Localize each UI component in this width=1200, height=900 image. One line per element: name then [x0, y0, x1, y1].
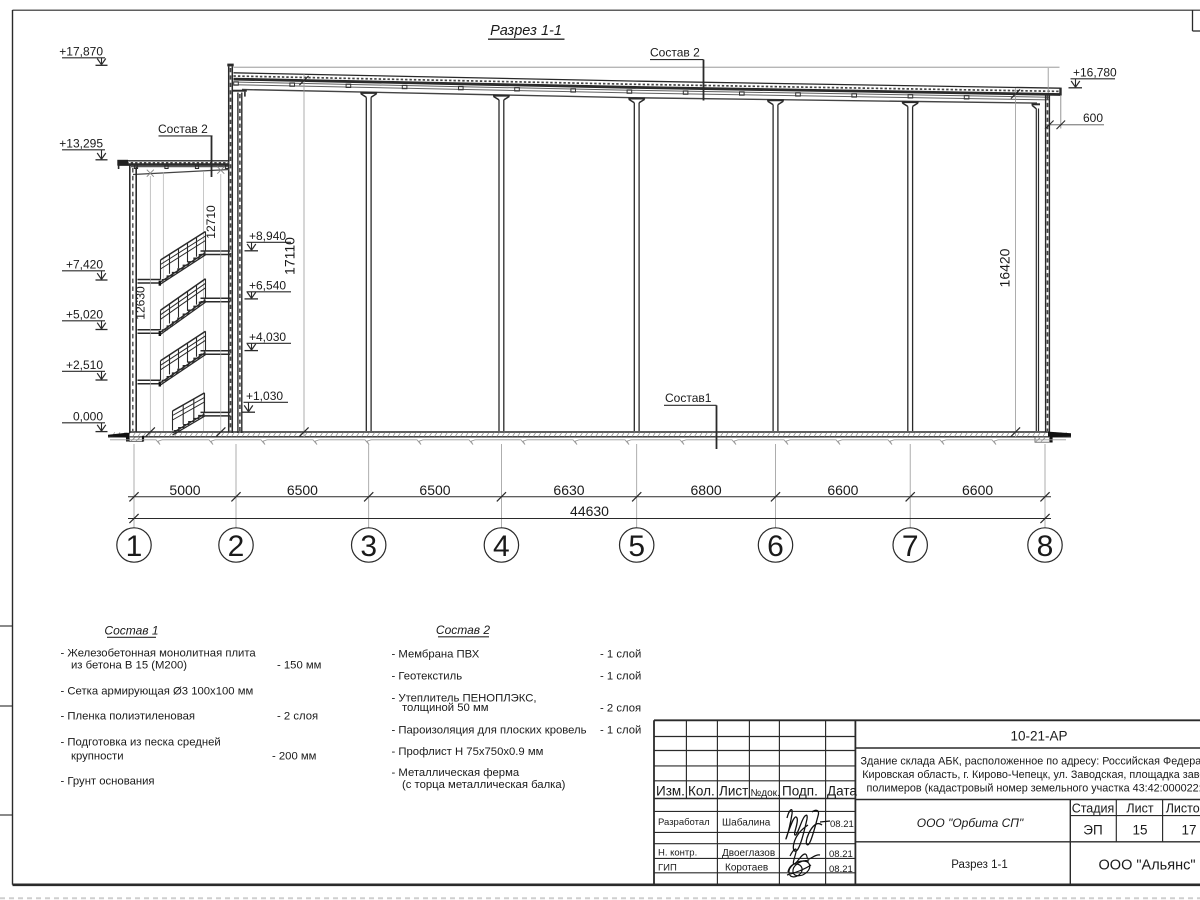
svg-text:44630: 44630	[570, 503, 609, 519]
svg-text:- Железобетонная монолитная п: - Железобетонная монолитная плита	[61, 648, 257, 660]
svg-text:Кол.: Кол.	[688, 784, 715, 799]
svg-text:17: 17	[1181, 823, 1196, 838]
svg-text:- Пароизоляция для плоских кро: - Пароизоляция для плоских кровель	[392, 725, 587, 737]
svg-text:Состав 1: Состав 1	[104, 624, 158, 638]
svg-text:6800: 6800	[691, 482, 722, 498]
svg-text:Шабалина: Шабалина	[722, 817, 771, 829]
svg-text:Подп.: Подп.	[782, 784, 818, 799]
svg-text:+13,295: +13,295	[59, 137, 103, 151]
svg-text:15: 15	[1132, 823, 1147, 838]
svg-text:6500: 6500	[287, 482, 318, 498]
svg-text:+6,540: +6,540	[249, 279, 286, 293]
svg-text:Лист: Лист	[719, 784, 748, 799]
svg-text:- Профлист Н 75х750х0.9 мм: - Профлист Н 75х750х0.9 мм	[392, 746, 544, 758]
svg-text:2: 2	[228, 530, 245, 563]
svg-text:Изм.: Изм.	[656, 784, 685, 799]
svg-text:5: 5	[628, 530, 645, 563]
svg-text:Коротаев: Коротаев	[725, 863, 768, 874]
svg-text:12630: 12630	[133, 286, 147, 320]
svg-text:600: 600	[1083, 111, 1103, 125]
svg-text:3: 3	[360, 530, 377, 563]
svg-text:Разрез 1-1: Разрез 1-1	[490, 23, 562, 39]
svg-text:Состав 2: Состав 2	[650, 46, 700, 60]
svg-text:08.21: 08.21	[830, 819, 854, 830]
svg-text:ООО "Альянс": ООО "Альянс"	[1099, 858, 1196, 874]
svg-text:Разрез 1-1: Разрез 1-1	[951, 859, 1007, 871]
svg-text:- Геотекстиль: - Геотекстиль	[392, 671, 463, 683]
svg-text:- 200 мм: - 200 мм	[272, 751, 316, 763]
svg-text:(с торца металлическая балка): (с торца металлическая балка)	[402, 779, 566, 791]
svg-text:- Металлическая ферма: - Металлическая ферма	[392, 767, 520, 779]
svg-text:- Сетка армирующая Ø3 100х100: - Сетка армирующая Ø3 100х100 мм	[61, 686, 254, 698]
svg-text:Стадия: Стадия	[1072, 802, 1115, 816]
svg-text:08.21: 08.21	[829, 864, 853, 875]
svg-text:6600: 6600	[827, 482, 858, 498]
svg-text:Кировская область, г. Кирово-Ч: Кировская область, г. Кирово-Чепецк, ул.…	[862, 769, 1200, 781]
svg-text:8: 8	[1037, 530, 1054, 563]
svg-text:17110: 17110	[282, 237, 298, 275]
svg-text:- 1 слой: - 1 слой	[600, 725, 641, 737]
svg-text:- Мембрана ПВХ: - Мембрана ПВХ	[392, 649, 480, 661]
svg-text:Здание склада АБК, расположенн: Здание склада АБК, расположенное по адре…	[861, 756, 1200, 768]
svg-text:0,000: 0,000	[73, 410, 103, 424]
svg-text:ООО "Орбита СП": ООО "Орбита СП"	[917, 816, 1024, 830]
svg-text:- 1 слой: - 1 слой	[600, 649, 641, 661]
svg-text:6500: 6500	[419, 482, 450, 498]
svg-text:- 2 слоя: - 2 слоя	[277, 711, 318, 723]
svg-text:полимеров (кадастровый номер з: полимеров (кадастровый номер земельного …	[867, 783, 1200, 795]
svg-text:+2,510: +2,510	[66, 358, 103, 372]
svg-text:Н. контр.: Н. контр.	[658, 847, 697, 858]
svg-text:- Пленка полиэтиленовая: - Пленка полиэтиленовая	[61, 711, 195, 723]
svg-text:12710: 12710	[204, 205, 218, 239]
svg-text:Состав 2: Состав 2	[436, 623, 490, 637]
svg-text:Листов: Листов	[1166, 802, 1200, 816]
svg-text:Разработал: Разработал	[658, 817, 710, 828]
svg-text:6630: 6630	[553, 482, 584, 498]
svg-text:ЭП: ЭП	[1083, 823, 1102, 838]
svg-text:+16,780: +16,780	[1073, 66, 1117, 80]
svg-text:+7,420: +7,420	[66, 258, 103, 272]
svg-text:Лист: Лист	[1126, 802, 1153, 816]
svg-text:6: 6	[767, 530, 784, 563]
svg-text:Состав1: Состав1	[665, 391, 712, 405]
svg-text:из бетона В 15 (М200): из бетона В 15 (М200)	[71, 660, 187, 672]
svg-text:ГИП: ГИП	[658, 862, 677, 873]
svg-text:+5,020: +5,020	[66, 308, 103, 322]
svg-text:Двоеглазов: Двоеглазов	[722, 848, 775, 859]
svg-text:4: 4	[493, 530, 510, 563]
svg-text:+4,030: +4,030	[249, 330, 286, 344]
svg-text:Дата: Дата	[827, 784, 857, 799]
svg-text:5000: 5000	[169, 482, 200, 498]
svg-text:16420: 16420	[997, 248, 1013, 287]
svg-text:08.21: 08.21	[829, 849, 853, 860]
svg-text:№док.: №док.	[751, 788, 780, 799]
svg-text:толщиной 50 мм: толщиной 50 мм	[402, 702, 489, 714]
svg-text:крупности: крупности	[71, 751, 124, 763]
svg-text:10-21-АР: 10-21-АР	[1010, 729, 1067, 744]
svg-text:+1,030: +1,030	[246, 389, 283, 403]
svg-text:- Подготовка из песка средней: - Подготовка из песка средней	[61, 737, 221, 749]
svg-text:1: 1	[126, 530, 143, 563]
svg-text:- 1 слой: - 1 слой	[600, 671, 641, 683]
svg-text:7: 7	[902, 530, 919, 563]
svg-text:Состав 2: Состав 2	[158, 122, 208, 136]
svg-text:- Грунт основания: - Грунт основания	[61, 776, 155, 788]
svg-text:6600: 6600	[962, 482, 993, 498]
svg-text:- 2 слоя: - 2 слоя	[600, 703, 641, 715]
svg-text:- 150 мм: - 150 мм	[277, 660, 321, 672]
svg-text:+17,870: +17,870	[59, 45, 103, 59]
